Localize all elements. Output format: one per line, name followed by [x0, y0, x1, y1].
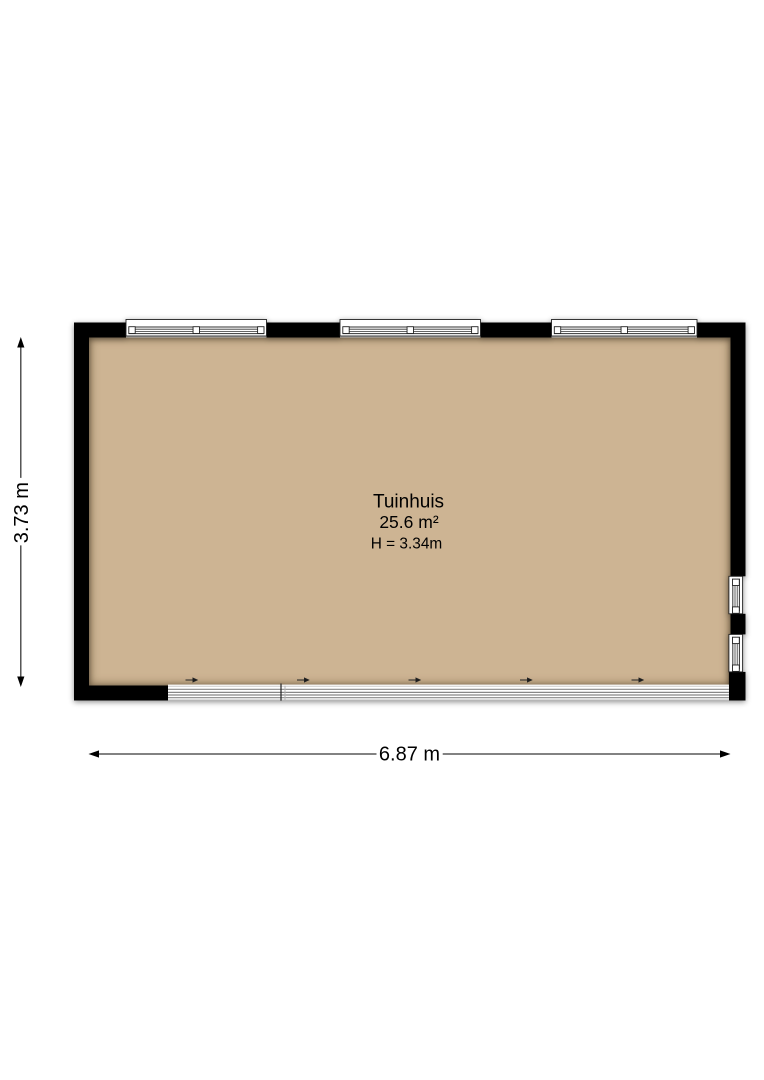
svg-text:H = 3.34m: H = 3.34m — [371, 536, 442, 553]
svg-text:25.6 m²: 25.6 m² — [379, 512, 438, 532]
svg-text:Tuinhuis: Tuinhuis — [373, 492, 444, 513]
svg-text:6.87 m: 6.87 m — [379, 744, 440, 766]
svg-text:3.73 m: 3.73 m — [11, 482, 33, 543]
